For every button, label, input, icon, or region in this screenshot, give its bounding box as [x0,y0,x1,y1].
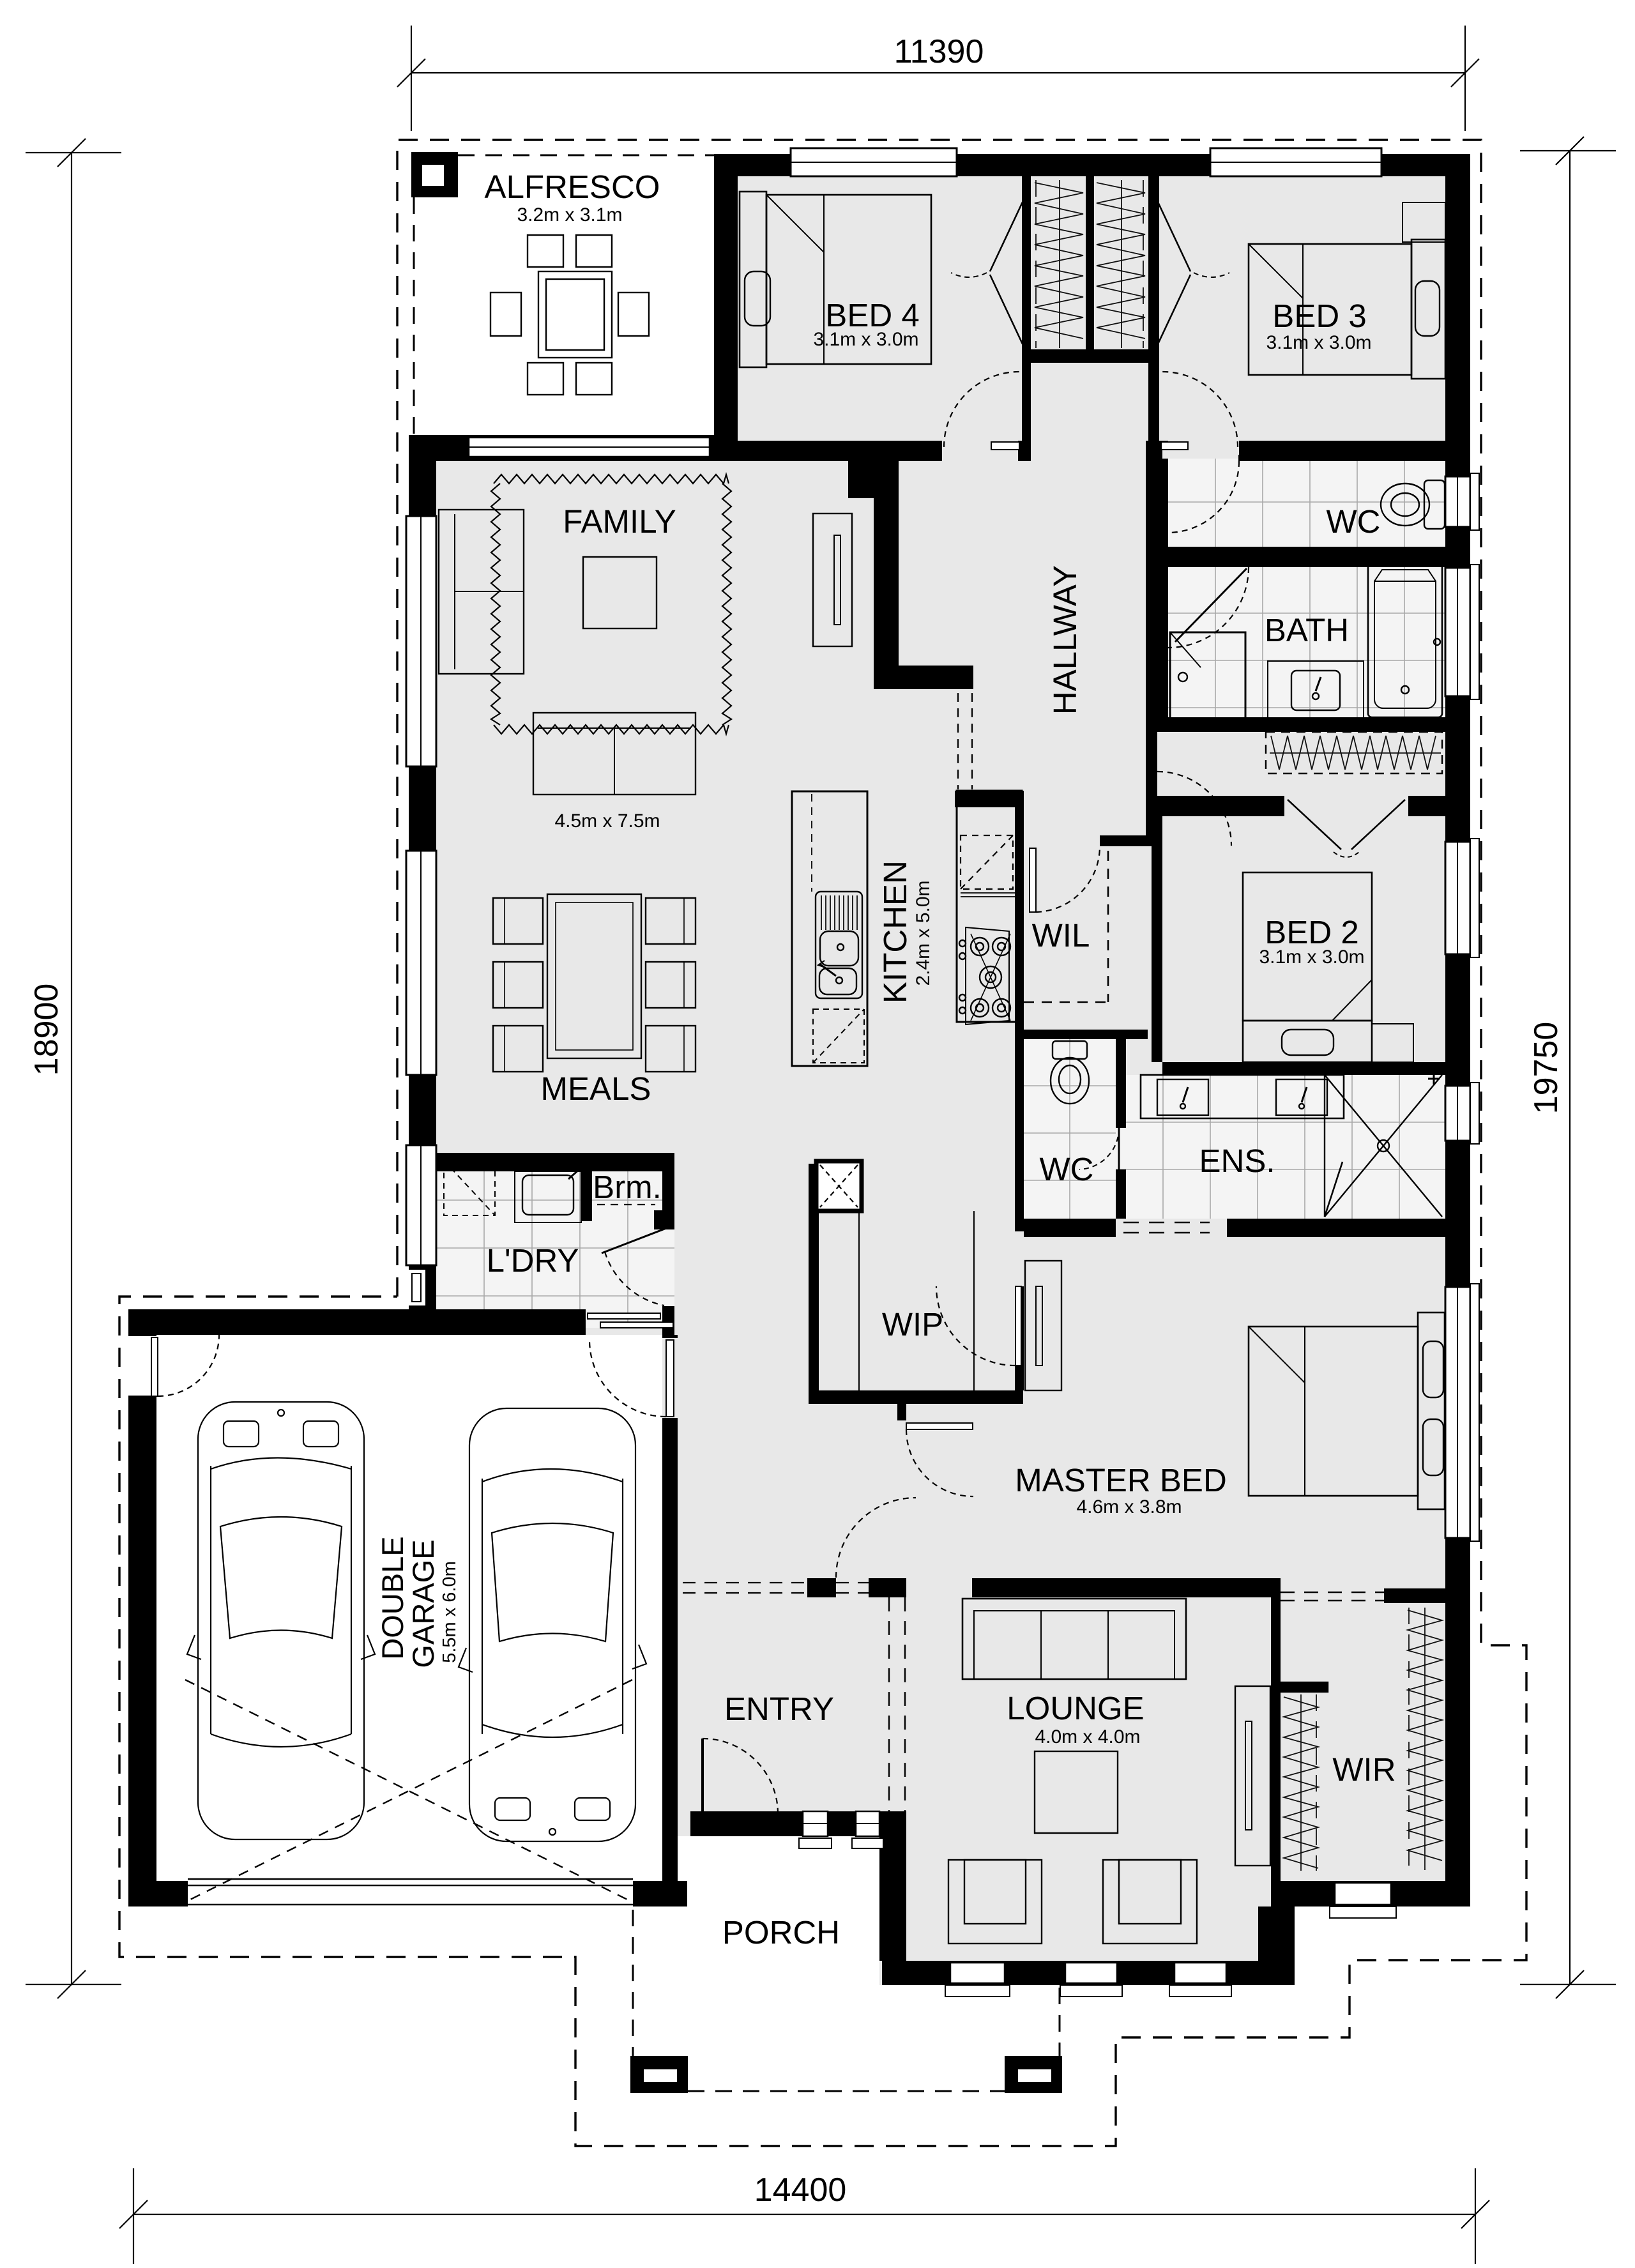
svg-text:WIL: WIL [1032,917,1090,954]
svg-text:ENS.: ENS. [1199,1143,1275,1179]
svg-text:BED 4: BED 4 [825,297,919,333]
svg-text:ALFRESCO: ALFRESCO [485,169,660,205]
svg-text:11390: 11390 [894,33,984,70]
svg-text:BED 3: BED 3 [1272,298,1366,334]
svg-text:DOUBLE: DOUBLE [376,1536,409,1659]
svg-text:Brm.: Brm. [593,1169,662,1205]
svg-text:ENTRY: ENTRY [724,1691,834,1727]
svg-text:4.5m x 7.5m: 4.5m x 7.5m [554,811,660,832]
svg-text:3.1m x 3.0m: 3.1m x 3.0m [813,329,918,350]
svg-text:WIR: WIR [1332,1751,1395,1788]
svg-text:4.0m x 4.0m: 4.0m x 4.0m [1035,1726,1140,1747]
svg-text:19750: 19750 [1528,1022,1565,1115]
svg-text:KITCHEN: KITCHEN [877,860,913,1003]
svg-text:LOUNGE: LOUNGE [1007,1690,1144,1726]
svg-text:BATH: BATH [1265,612,1349,648]
svg-text:MEALS: MEALS [541,1070,651,1107]
svg-text:14400: 14400 [754,2172,847,2209]
svg-text:18900: 18900 [28,984,65,1076]
svg-text:3.1m x 3.0m: 3.1m x 3.0m [1266,332,1371,353]
svg-text:BED 2: BED 2 [1265,914,1358,950]
svg-text:3.2m x 3.1m: 3.2m x 3.1m [517,204,622,225]
svg-text:WC: WC [1327,503,1381,540]
svg-text:5.5m x 6.0m: 5.5m x 6.0m [439,1561,460,1663]
svg-text:3.1m x 3.0m: 3.1m x 3.0m [1259,947,1364,968]
svg-text:PORCH: PORCH [722,1914,840,1951]
svg-text:WC: WC [1040,1151,1094,1187]
svg-text:HALLWAY: HALLWAY [1047,565,1083,715]
svg-text:WIP: WIP [882,1306,943,1343]
svg-text:GARAGE: GARAGE [406,1539,440,1668]
svg-text:4.6m x 3.8m: 4.6m x 3.8m [1076,1496,1182,1518]
svg-text:MASTER BED: MASTER BED [1015,1462,1227,1498]
svg-text:2.4m x 5.0m: 2.4m x 5.0m [913,880,934,986]
svg-text:FAMILY: FAMILY [563,503,676,540]
svg-text:L'DRY: L'DRY [487,1242,579,1279]
